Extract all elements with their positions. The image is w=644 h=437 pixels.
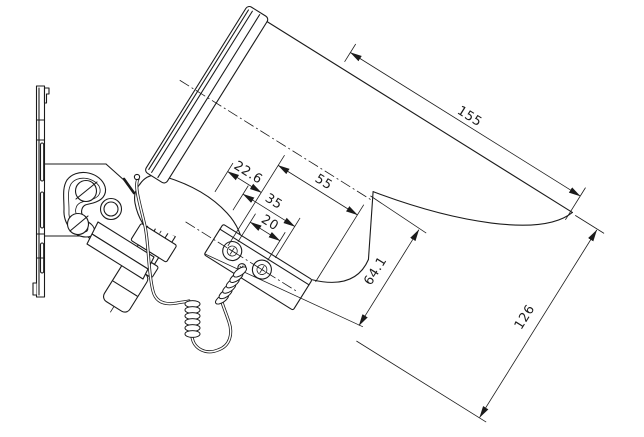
bracket-rib xyxy=(124,179,134,193)
ext-155-left xyxy=(345,44,356,62)
body-back-curve xyxy=(373,117,572,287)
dim-line-55 xyxy=(278,165,357,214)
technical-drawing: 155 126 64.1 55 22.6 35 20 xyxy=(0,0,644,437)
dim-35-label: 35 xyxy=(262,191,285,213)
ext-35-left xyxy=(233,186,248,211)
front-panel-line-3 xyxy=(158,15,260,178)
dim-226-label: 22.6 xyxy=(231,158,265,187)
dimensions: 155 126 64.1 55 22.6 35 20 xyxy=(184,17,622,427)
plate-slot-1 xyxy=(41,143,44,181)
wall-plate-foot xyxy=(33,283,37,295)
drawing-canvas: 155 126 64.1 55 22.6 35 20 xyxy=(0,0,644,437)
front-panel xyxy=(144,5,269,184)
ext-226-left xyxy=(215,163,233,192)
body-lower-edge xyxy=(341,192,400,260)
dim-155-label: 155 xyxy=(454,103,484,130)
dim-line-126 xyxy=(480,230,597,417)
front-panel-line-2 xyxy=(152,11,253,172)
body-lower-curve xyxy=(312,240,369,300)
device-axis-centerline xyxy=(180,80,372,200)
dim-line-155 xyxy=(350,52,580,196)
dim-641-label: 64.1 xyxy=(361,254,390,288)
wall-plate xyxy=(33,86,49,297)
plate-slot-2 xyxy=(41,192,44,228)
front-panel-line-1 xyxy=(149,10,249,169)
ext-20-left xyxy=(238,214,255,242)
cable-coil-1 xyxy=(185,301,200,338)
screw-centerline xyxy=(186,222,296,291)
ext-155-right xyxy=(565,188,585,220)
ext-126-top xyxy=(575,215,604,233)
dim-126-label: 126 xyxy=(512,302,539,332)
ext-55-right xyxy=(316,205,364,282)
cable-end-ring xyxy=(134,174,139,179)
ext-641-top xyxy=(369,196,427,233)
ext-126-bottom xyxy=(356,341,486,422)
wall-plate-top-tab xyxy=(45,88,50,103)
